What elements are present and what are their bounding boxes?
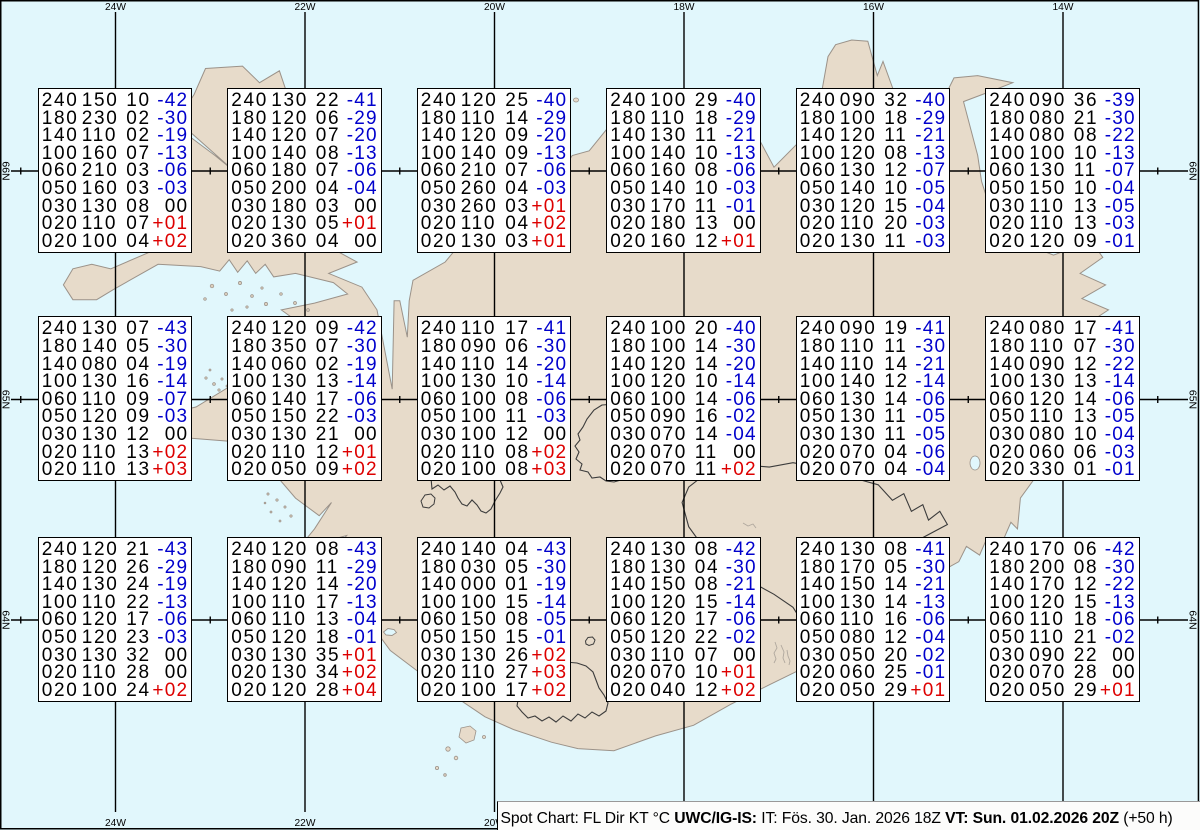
svg-text:16W: 16W — [863, 2, 884, 13]
svg-text:24W: 24W — [105, 2, 126, 13]
svg-text:20W: 20W — [484, 2, 505, 13]
svg-text:64N: 64N — [0, 610, 12, 629]
svg-text:64N: 64N — [1187, 610, 1199, 629]
svg-text:18W: 18W — [674, 2, 695, 13]
svg-text:22W: 22W — [295, 818, 316, 829]
svg-text:24W: 24W — [105, 818, 126, 829]
svg-text:66N: 66N — [0, 161, 12, 180]
svg-text:22W: 22W — [295, 2, 316, 13]
svg-text:14W: 14W — [1053, 2, 1074, 13]
svg-text:65N: 65N — [1187, 390, 1199, 409]
svg-text:65N: 65N — [0, 390, 12, 409]
svg-text:66N: 66N — [1187, 161, 1199, 180]
